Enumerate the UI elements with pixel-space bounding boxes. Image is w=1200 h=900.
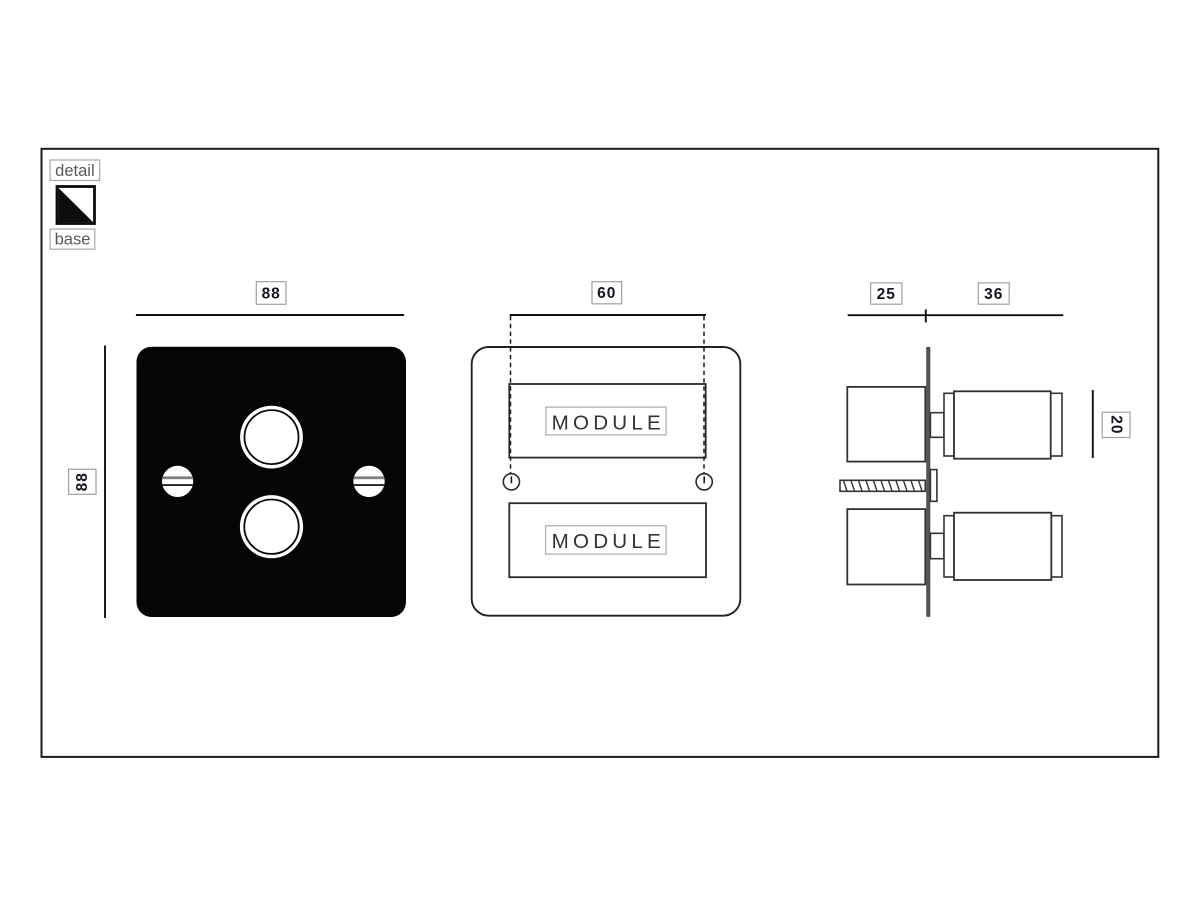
svg-text:36: 36 xyxy=(984,286,1003,303)
svg-text:60: 60 xyxy=(597,285,616,302)
svg-text:MODULE: MODULE xyxy=(552,530,665,553)
svg-text:base: base xyxy=(55,230,91,248)
svg-text:88: 88 xyxy=(262,285,281,302)
svg-text:25: 25 xyxy=(877,286,896,303)
svg-text:88: 88 xyxy=(74,472,91,491)
svg-text:20: 20 xyxy=(1108,415,1125,434)
svg-text:MODULE: MODULE xyxy=(552,412,665,435)
svg-text:detail: detail xyxy=(55,162,94,180)
